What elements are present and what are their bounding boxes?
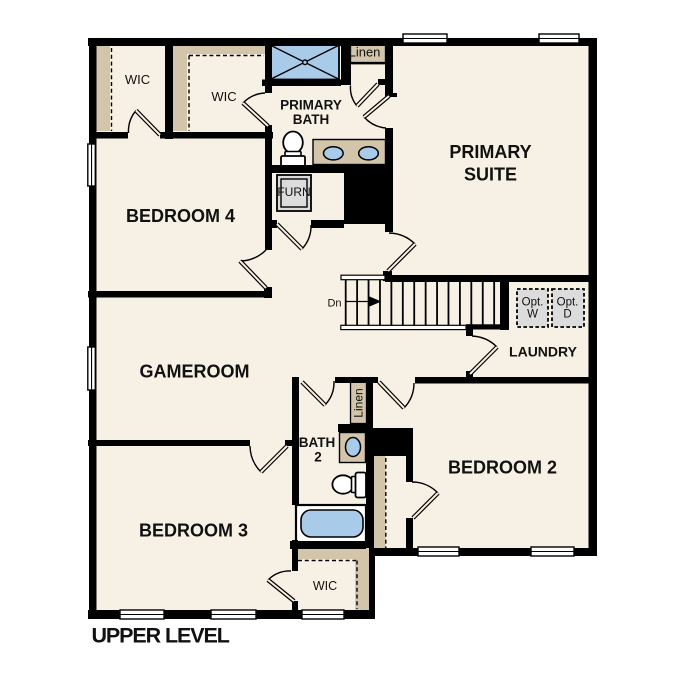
svg-text:BEDROOM 4: BEDROOM 4 [126, 206, 235, 226]
svg-text:WIC: WIC [211, 89, 236, 104]
svg-text:PRIMARY: PRIMARY [280, 98, 342, 113]
svg-text:GAMEROOM: GAMEROOM [140, 362, 250, 382]
svg-text:BATH: BATH [299, 435, 336, 450]
svg-text:UPPER LEVEL: UPPER LEVEL [92, 624, 230, 648]
svg-text:LAUNDRY: LAUNDRY [509, 344, 578, 360]
svg-text:BATH: BATH [293, 112, 330, 127]
svg-text:Linen: Linen [349, 45, 381, 60]
svg-text:BEDROOM 2: BEDROOM 2 [448, 458, 557, 478]
svg-text:Dn: Dn [327, 298, 341, 310]
svg-text:Opt.: Opt. [557, 297, 579, 309]
svg-text:D: D [563, 309, 571, 321]
svg-text:Opt.: Opt. [522, 297, 544, 309]
svg-text:PRIMARY: PRIMARY [449, 142, 531, 162]
svg-text:SUITE: SUITE [464, 165, 517, 185]
svg-text:BEDROOM 3: BEDROOM 3 [139, 521, 248, 541]
svg-text:WIC: WIC [125, 72, 150, 87]
svg-text:WIC: WIC [313, 579, 337, 593]
svg-text:2: 2 [314, 450, 322, 465]
svg-text:Linen: Linen [352, 388, 366, 417]
svg-text:W: W [527, 309, 538, 321]
svg-text:FURN: FURN [277, 185, 310, 199]
